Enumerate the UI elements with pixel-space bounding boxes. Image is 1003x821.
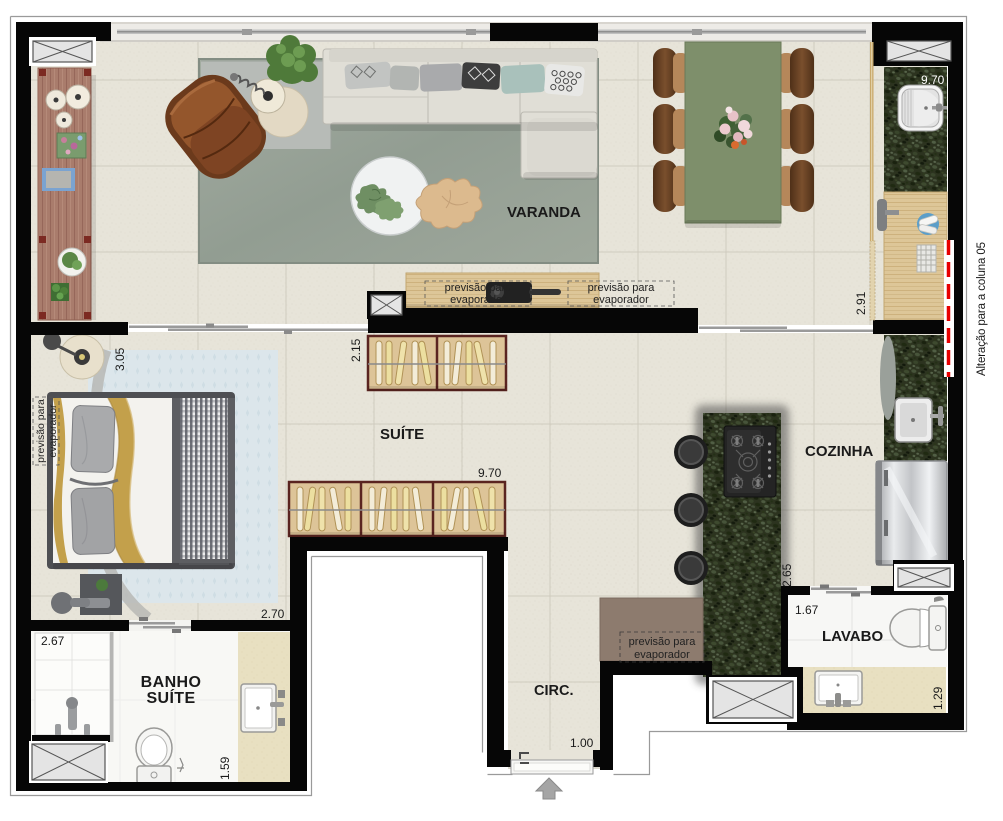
svg-text:2.67: 2.67 [41, 634, 65, 648]
svg-text:9.70: 9.70 [921, 73, 945, 87]
svg-text:evaporador: evaporador [450, 294, 506, 306]
svg-text:CIRC.: CIRC. [534, 683, 573, 699]
svg-text:1.29: 1.29 [931, 686, 945, 710]
svg-text:previsão para: previsão para [588, 282, 656, 294]
svg-text:previsão para: previsão para [445, 282, 513, 294]
svg-text:Alteração para a coluna 05: Alteração para a coluna 05 [976, 242, 988, 376]
svg-text:2.70: 2.70 [261, 607, 285, 621]
svg-text:previsão para: previsão para [35, 399, 47, 463]
svg-text:2.91: 2.91 [854, 291, 868, 315]
svg-text:LAVABO: LAVABO [822, 628, 883, 645]
svg-text:BANHO: BANHO [141, 674, 202, 691]
svg-text:evaporador: evaporador [593, 294, 649, 306]
svg-text:2.15: 2.15 [349, 338, 363, 362]
svg-text:evaporador: evaporador [634, 649, 690, 661]
svg-text:9.70: 9.70 [478, 466, 502, 480]
svg-text:1.67: 1.67 [795, 603, 819, 617]
svg-text:3.05: 3.05 [113, 347, 127, 371]
svg-text:VARANDA: VARANDA [507, 204, 581, 221]
svg-text:SUÍTE: SUÍTE [380, 426, 424, 443]
svg-text:2.65: 2.65 [780, 563, 794, 587]
svg-text:1.00: 1.00 [570, 736, 594, 750]
svg-text:previsão para: previsão para [629, 636, 697, 648]
svg-text:1.59: 1.59 [218, 756, 232, 780]
svg-text:evaporador: evaporador [47, 404, 59, 458]
svg-text:COZINHA: COZINHA [805, 443, 873, 460]
svg-text:SUÍTE: SUÍTE [146, 688, 195, 707]
